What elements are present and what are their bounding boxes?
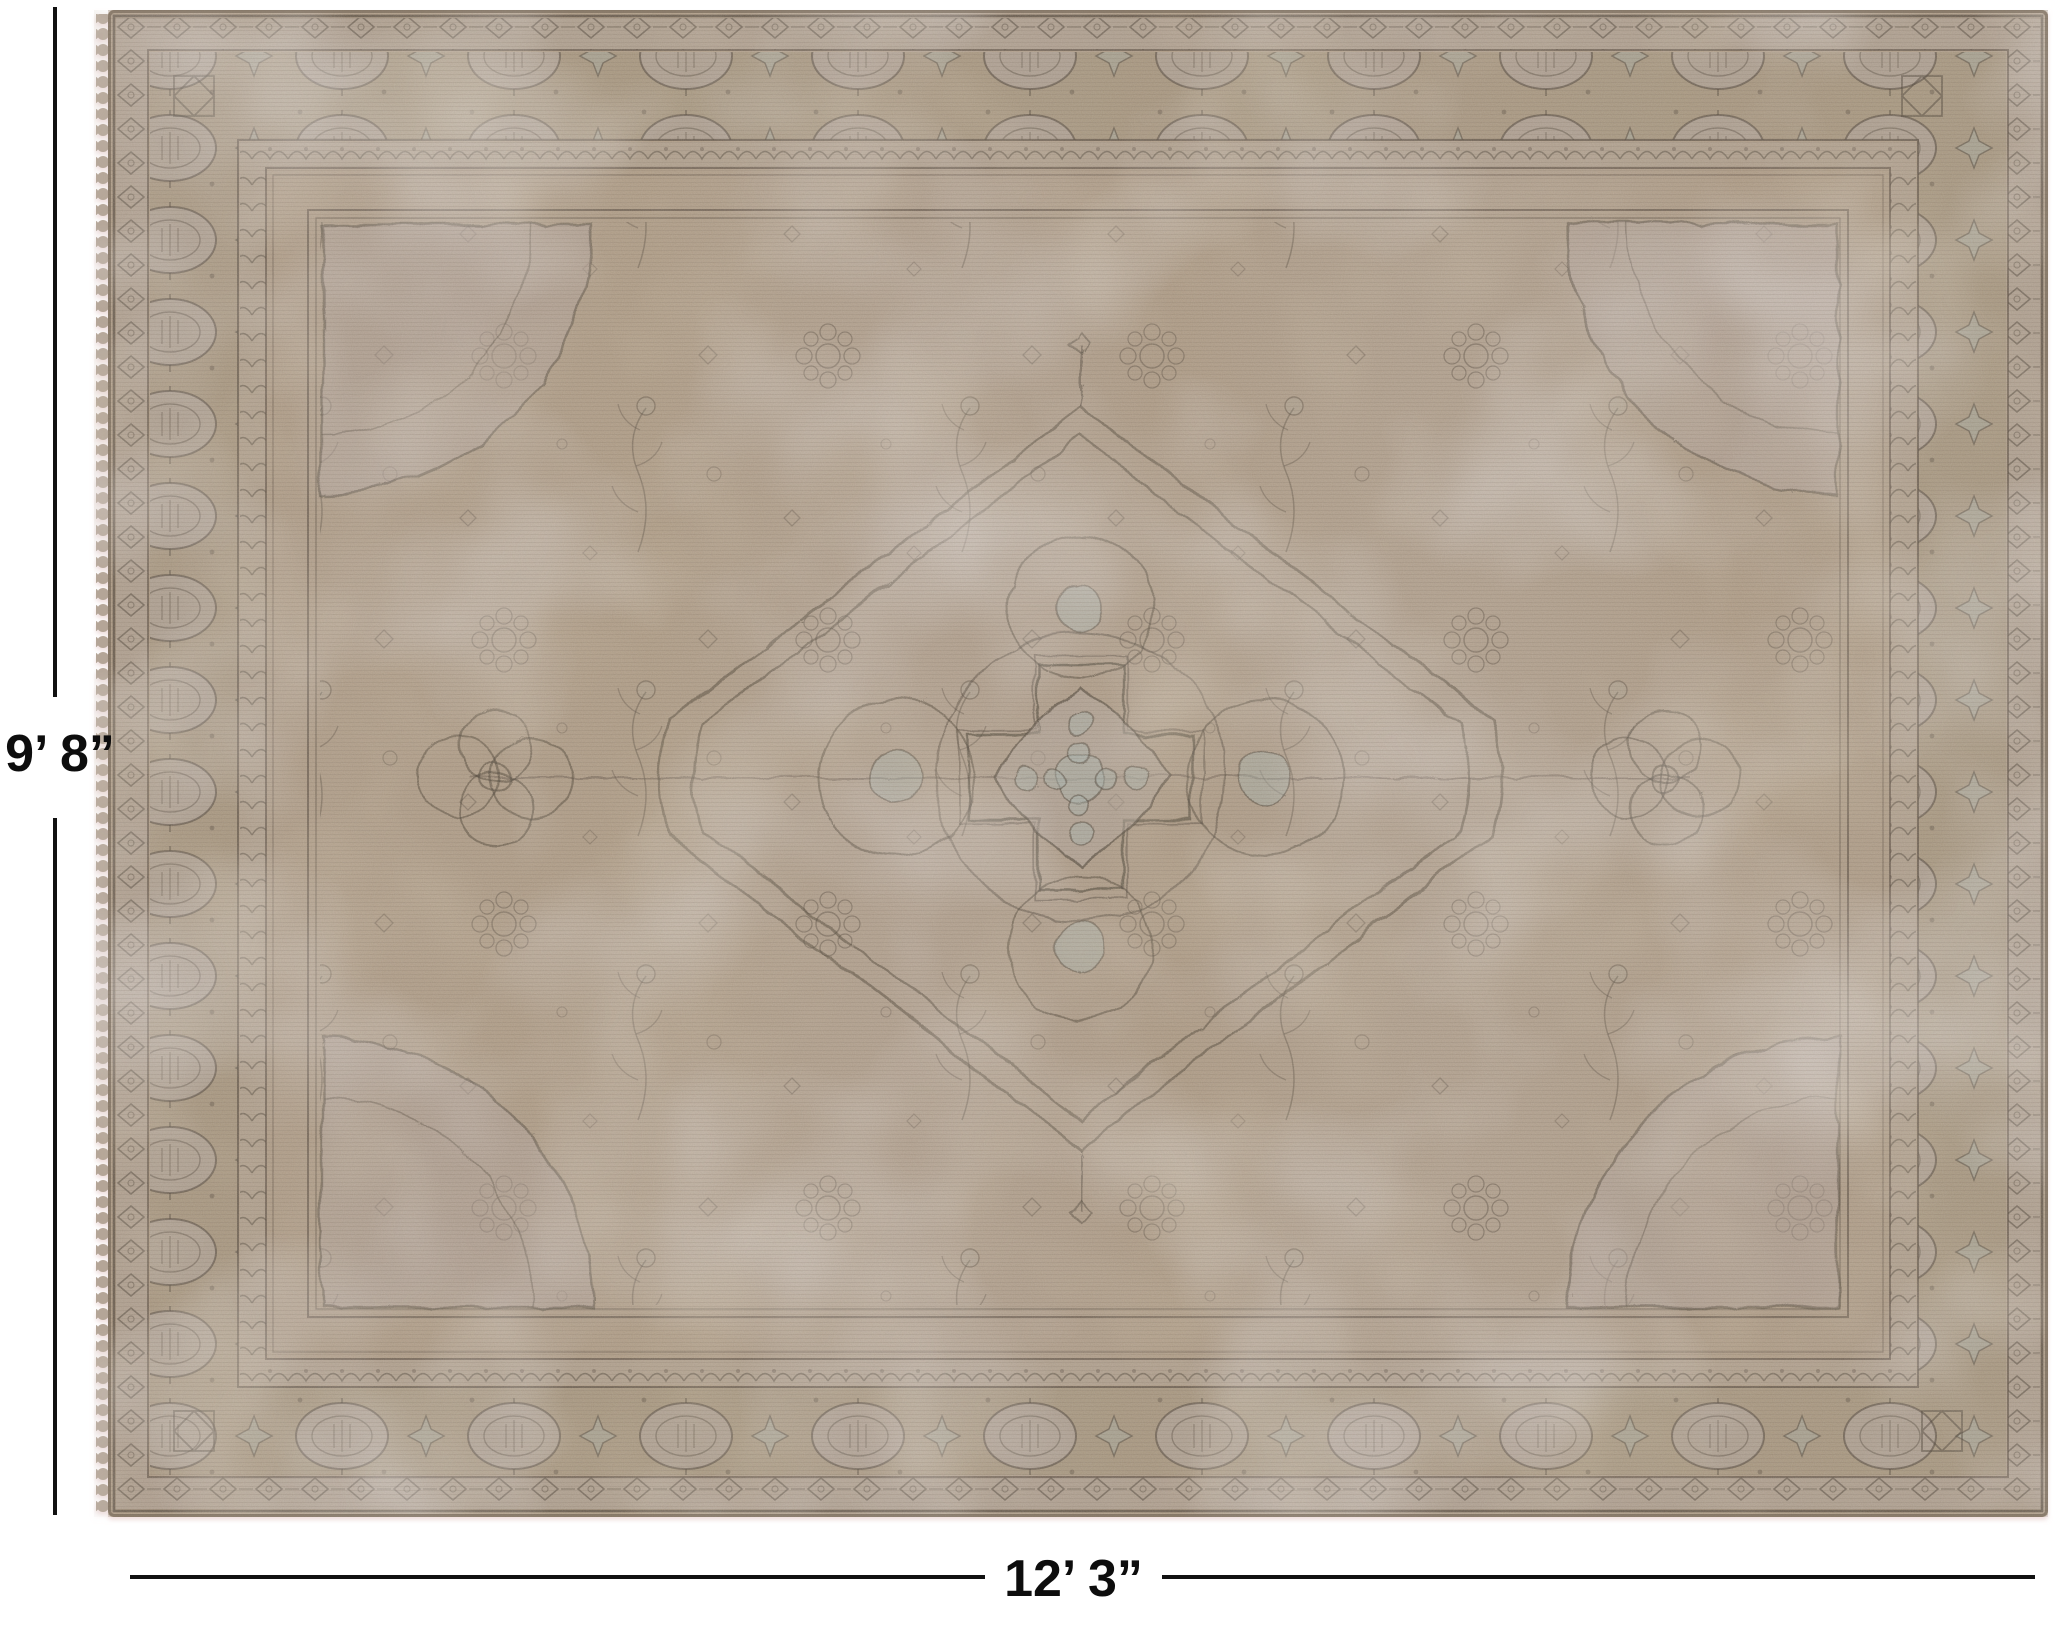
- rug-photo: [94, 10, 2048, 1517]
- width-dimension-line-right: [1162, 1575, 2035, 1579]
- width-dimension-line-left: [130, 1575, 985, 1579]
- height-dimension-label: 9’ 8”: [0, 724, 120, 784]
- width-dimension-label: 12’ 3”: [985, 1549, 1162, 1609]
- height-dimension-line-bottom: [53, 818, 57, 1515]
- product-image: 9’ 8” 12’ 3”: [0, 0, 2054, 1637]
- height-dimension-line-top: [53, 7, 57, 697]
